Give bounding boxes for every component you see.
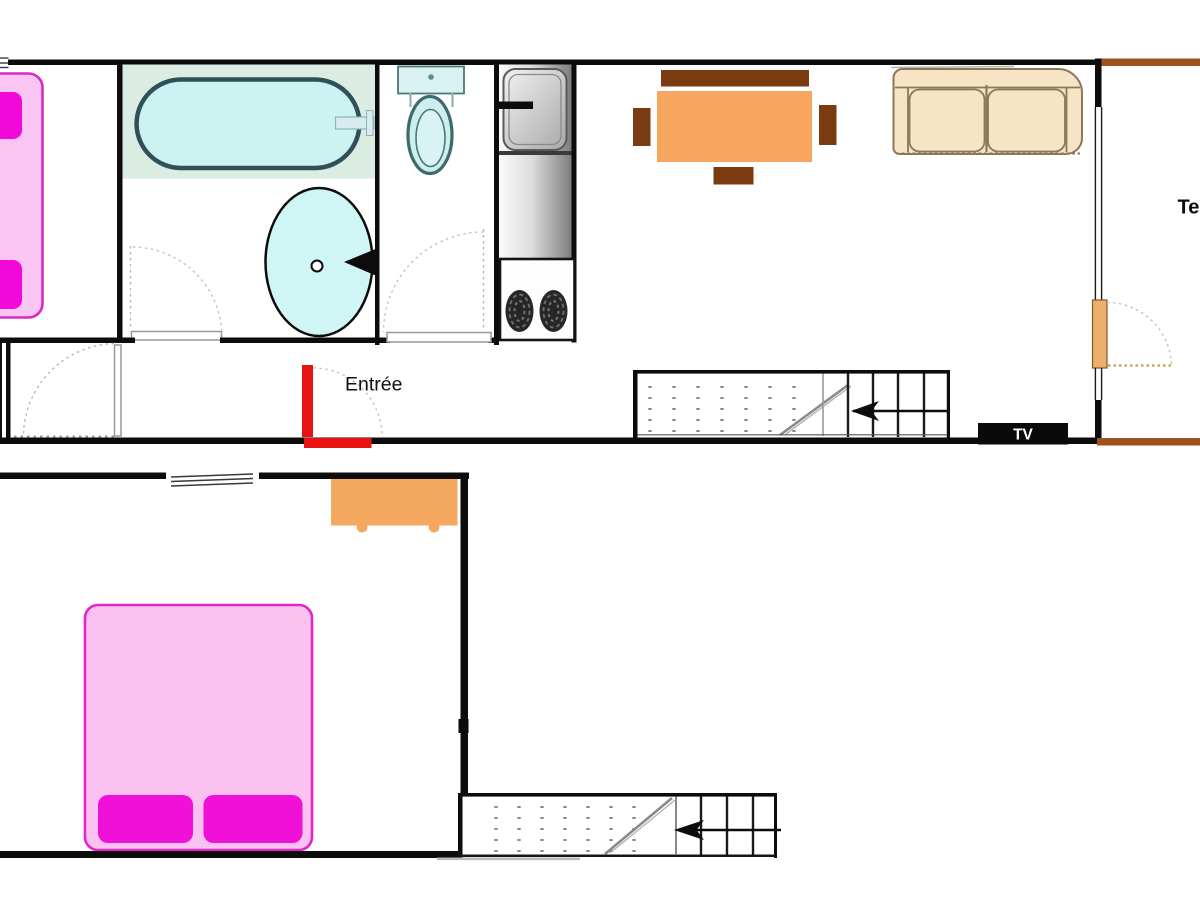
svg-text:Entrée: Entrée bbox=[345, 374, 402, 396]
svg-text:Terrasse: Terrasse bbox=[1178, 197, 1200, 219]
svg-text:TV: TV bbox=[1013, 427, 1033, 444]
